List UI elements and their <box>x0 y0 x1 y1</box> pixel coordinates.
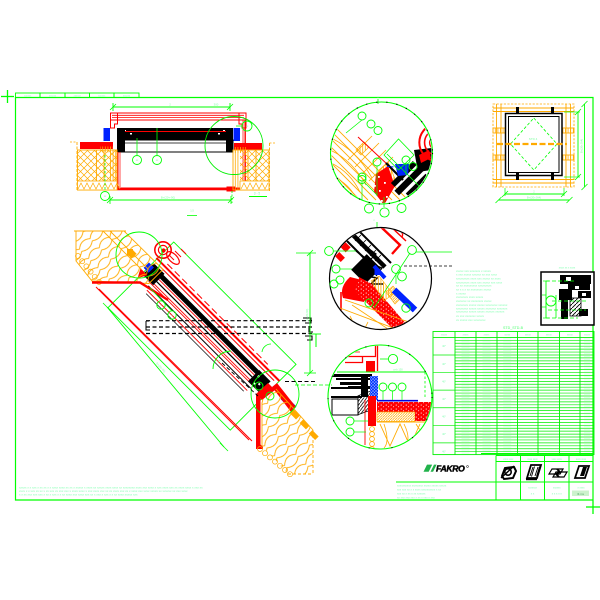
svg-text:xxxxxxx: xxxxxxx <box>528 487 538 490</box>
svg-text:xxxxxx: xxxxxx <box>98 95 106 98</box>
svg-text:xxxx xxxx: xxxx xxxx <box>576 458 587 461</box>
svg-text:40°: 40° <box>442 345 446 348</box>
svg-text:III-Ca: III-Ca <box>577 492 584 496</box>
svg-text:xxxxx: xxxxx <box>546 335 553 337</box>
svg-text:xx xxxxx xxx xxxxxxxx: xx xxxxx xxx xxxxxxxx <box>456 318 486 322</box>
svg-text:xxxxxx: xxxxxx <box>74 95 82 98</box>
svg-text:xxxxxx: xxxxxx <box>123 95 131 98</box>
svg-text:STD 4: STD 4 <box>529 137 538 141</box>
svg-text:xxxx xxxx: xxxx xxxx <box>552 458 563 461</box>
svg-text:40°: 40° <box>442 451 446 454</box>
svg-text:x x: x x <box>531 492 535 496</box>
svg-text:B+(20+JA4): B+(20+JA4) <box>580 139 584 153</box>
svg-text:xxxx xxxx: xxxx xxxx <box>503 458 514 461</box>
svg-text:S+(20-90): S+(20-90) <box>305 309 309 322</box>
svg-text:xxxxx: xxxxx <box>525 335 532 337</box>
svg-text:x xxxx: x xxxx <box>578 487 586 490</box>
svg-text:xxxxx: xxxxx <box>567 335 574 337</box>
svg-text:xx xxx xxx xxx x xx x xxx x xx: xx xxx xxx xxx x xx x xxx x xxx <box>397 496 435 500</box>
svg-text:xxxxx: xxxxx <box>441 335 448 337</box>
svg-text:xxxxx: xxxxx <box>584 335 591 337</box>
svg-text:xxxxxxxx xxxxx xxxxx xxxxxx xx: xxxxxxxx xxxxx xxxxx xxxxxx xxxxxx <box>456 309 505 313</box>
svg-text:xxxxx: xxxxx <box>463 335 470 337</box>
svg-text:B+(20+-90): B+(20+-90) <box>161 196 175 200</box>
svg-text:40°: 40° <box>442 433 446 436</box>
svg-text:300: 300 <box>214 103 219 107</box>
svg-text:xxxxxx: xxxxxx <box>553 487 561 490</box>
svg-text:1:5: 1:5 <box>190 209 194 213</box>
svg-text:3 - 5: 3 - 5 <box>254 192 261 196</box>
svg-text:xxxxx: xxxxx <box>504 335 511 337</box>
svg-text:xxxxx: xxxxx <box>484 335 491 337</box>
svg-text:B+(20+JA4): B+(20+JA4) <box>527 196 541 200</box>
svg-text:xxxx xxxx: xxxx xxxx <box>527 458 538 461</box>
svg-text:40°: 40° <box>442 380 446 383</box>
svg-text:FAKRO: FAKRO <box>436 464 465 474</box>
svg-text:x x xx xxx xxx xxx x xx x xxx: x x xx xxx xxx xxx x xx x xxx x x xx xxx… <box>19 492 138 496</box>
svg-text:40°: 40° <box>442 398 446 401</box>
svg-text:xxxxxx: xxxxxx <box>49 95 57 98</box>
svg-text:xxxxxx: xxxxxx <box>24 95 32 98</box>
svg-text:a+b 150: a+b 150 <box>393 368 403 372</box>
svg-text:x x x x x: x x x x x <box>552 492 563 496</box>
svg-text:40°: 40° <box>442 416 446 419</box>
svg-text:STD_STD-B: STD_STD-B <box>503 326 524 330</box>
svg-text:xxxx xx x xxxx: xxxx xx x xxxx <box>559 267 576 270</box>
svg-text:40°: 40° <box>442 363 446 366</box>
